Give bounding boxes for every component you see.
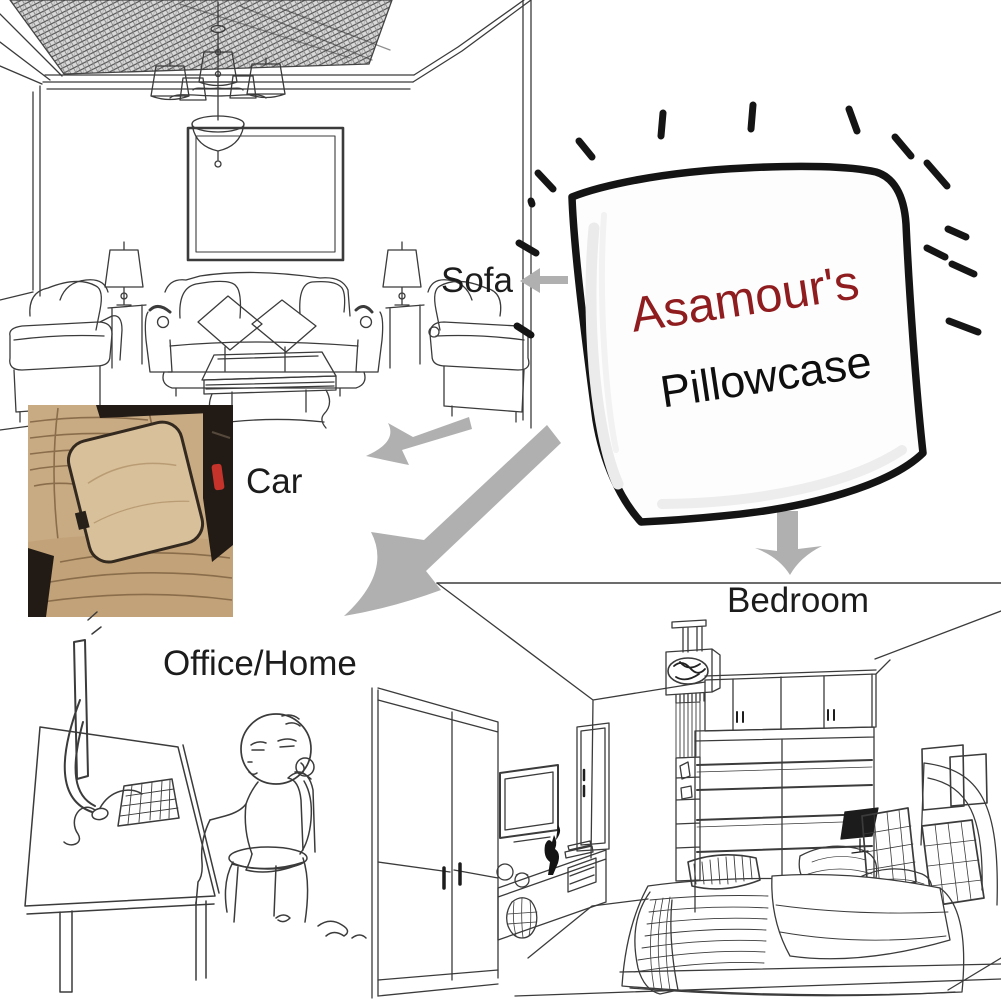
diagram-canvas: Asamour's Pillowcase Sofa Car Office/Hom… (0, 0, 1001, 1001)
wall-picture-frame (188, 128, 343, 260)
tv (500, 765, 558, 842)
wardrobe (372, 688, 498, 998)
person-at-desk (196, 714, 314, 904)
bedroom-illustration (372, 583, 1001, 998)
arrow-to-sofa-icon (520, 268, 568, 293)
armchair-right (428, 280, 529, 422)
living-room-illustration (0, 0, 531, 430)
desk (25, 727, 219, 992)
wall-frames (922, 745, 987, 810)
overhead-cabinets (705, 660, 890, 731)
table-lamp-right (383, 242, 424, 368)
tv-console (497, 825, 606, 940)
car-seat-photo (28, 405, 233, 617)
pillow-illustration: Asamour's Pillowcase (572, 166, 923, 522)
armchair-left (10, 280, 122, 422)
office-home-label: Office/Home (163, 644, 357, 683)
sofa-label: Sofa (441, 261, 514, 300)
sofa-pillow-diamond-right (252, 300, 316, 352)
arrow-to-bedroom-icon (755, 511, 822, 575)
bed (622, 763, 1001, 996)
air-vent-unit (666, 620, 720, 881)
keyboard (118, 779, 179, 826)
bedroom-label: Bedroom (727, 581, 869, 620)
chair (225, 772, 366, 938)
dark-striped-pillow (688, 855, 760, 889)
product-usage-diagram: Asamour's Pillowcase Sofa Car Office/Hom… (0, 0, 1001, 1001)
arrow-to-car-icon (366, 417, 472, 465)
sofa-three-seater (145, 272, 382, 396)
white-blanket (772, 875, 950, 959)
car-label: Car (246, 462, 303, 501)
draped-corner (635, 892, 678, 994)
